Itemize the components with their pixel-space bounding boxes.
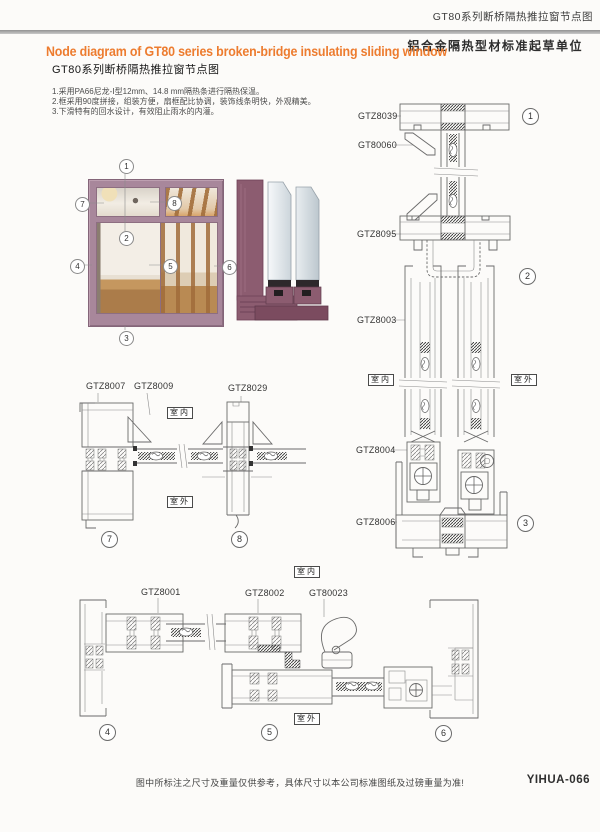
outdoor-tag-right: 室外 <box>511 374 537 386</box>
profile-label-gtz8095: GTZ8095 <box>357 229 396 239</box>
profile-label-gtz8002: GTZ8002 <box>245 588 284 598</box>
callout-3: 3 <box>119 331 134 346</box>
outdoor-tag-mid: 室外 <box>167 496 193 508</box>
node-badge-5: 5 <box>261 724 278 741</box>
profile-label-gtz8039: GTZ8039 <box>358 111 397 121</box>
profile-label-gtz8004: GTZ8004 <box>356 445 395 455</box>
section-drawing-right <box>391 104 510 557</box>
diagram-art <box>0 0 600 832</box>
footer-disclaimer: 图中所标注之尺寸及重量仅供参考，具体尺寸以本公司标准图纸及过磅重量为准! <box>0 776 600 789</box>
node-badge-8: 8 <box>231 531 248 548</box>
profile-label-gtz8029: GTZ8029 <box>228 383 267 393</box>
callout-1: 1 <box>119 159 134 174</box>
indoor-tag-right: 室内 <box>368 374 394 386</box>
indoor-tag-mid: 室内 <box>167 407 193 419</box>
profile-3d-render <box>237 180 328 320</box>
profile-label-gtz8006: GTZ8006 <box>356 517 395 527</box>
profile-label-gtz8009: GTZ8009 <box>134 381 173 391</box>
callout-6: 6 <box>222 260 237 275</box>
catalog-page: GT80系列断桥隔热推拉窗节点图 铝合金隔热型材标准起草单位 Node diag… <box>0 0 600 832</box>
page-code: YIHUA-066 <box>527 774 590 786</box>
callout-4: 4 <box>70 259 85 274</box>
callout-8: 8 <box>167 196 182 211</box>
section-drawing-mid <box>80 393 306 528</box>
callout-7: 7 <box>75 197 90 212</box>
profile-label-gtz8003: GTZ8003 <box>357 315 396 325</box>
node-badge-3: 3 <box>517 515 534 532</box>
node-badge-1: 1 <box>522 108 539 125</box>
profile-label-gtz8001: GTZ8001 <box>141 587 180 597</box>
photo-callout-leaders <box>83 172 221 330</box>
node-badge-6: 6 <box>435 725 452 742</box>
callout-2: 2 <box>119 231 134 246</box>
node-badge-7: 7 <box>101 531 118 548</box>
outdoor-tag-bottom: 室外 <box>294 713 320 725</box>
section-drawing-bottom <box>80 598 478 718</box>
indoor-tag-bottom: 室内 <box>294 566 320 578</box>
profile-label-gtz8007: GTZ8007 <box>86 381 125 391</box>
callout-5: 5 <box>163 259 178 274</box>
profile-label-gt80060: GT80060 <box>358 140 397 150</box>
profile-label-gt80023: GT80023 <box>309 588 348 598</box>
node-badge-4: 4 <box>99 724 116 741</box>
node-badge-2: 2 <box>519 268 536 285</box>
